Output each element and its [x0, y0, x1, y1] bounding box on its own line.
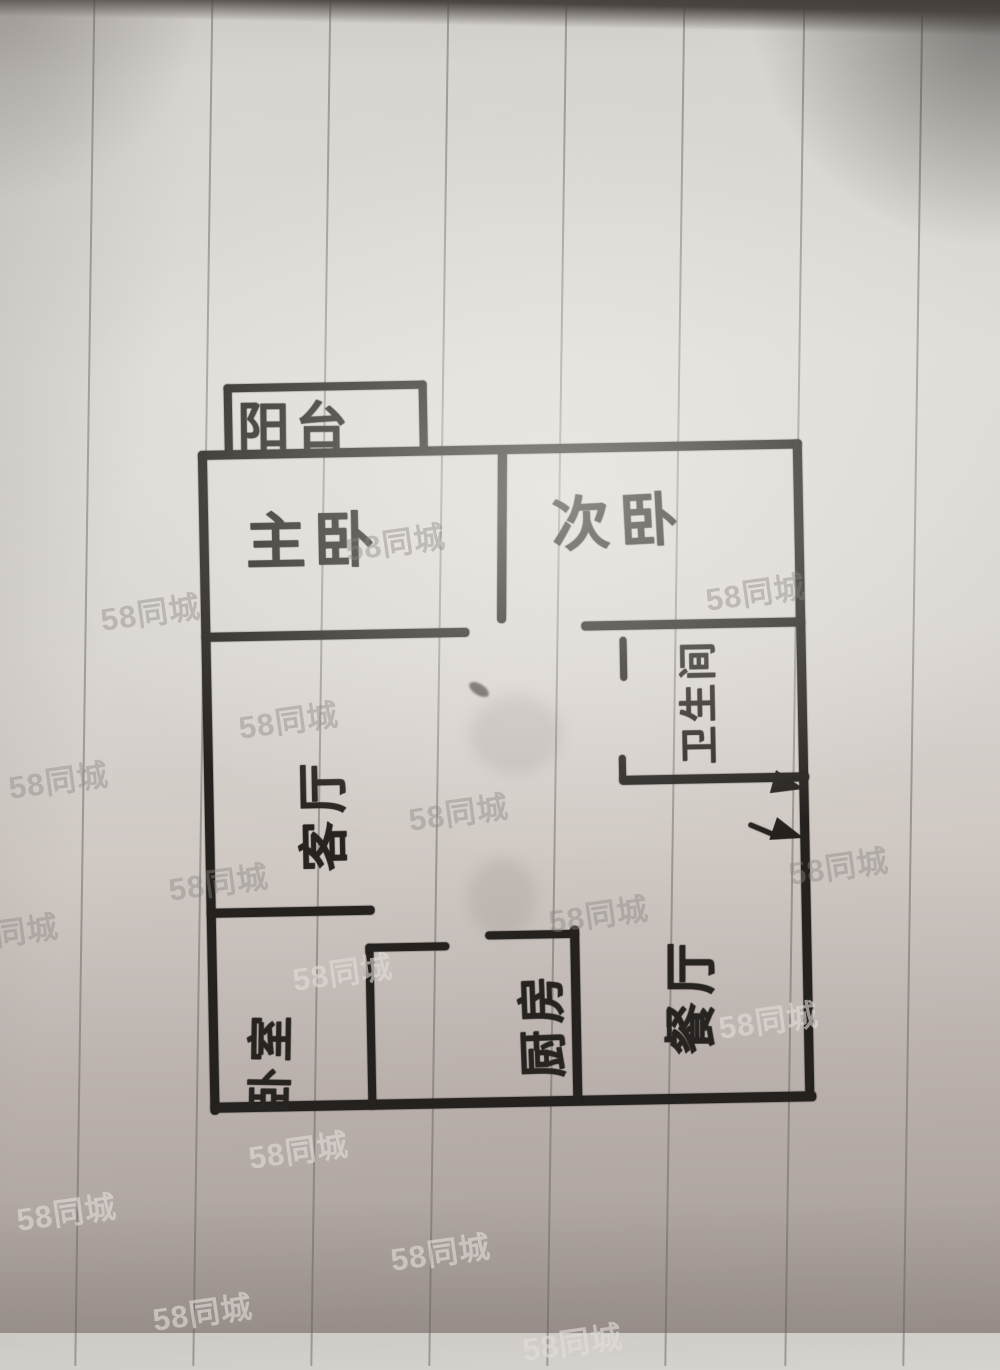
- bathroom-bottom-wall-hook: [619, 755, 627, 783]
- kitchen-top-right-wall: [485, 930, 579, 940]
- wall-left: [198, 453, 220, 1115]
- floor-plan: 阳台 主卧 次卧 卫生间 客厅 卧室 厨房 餐厅: [186, 369, 832, 1133]
- watermark-58tongcheng: 58同城: [519, 1311, 625, 1370]
- photo-of-floor-plan-sketch: { "scene": { "description": "Hand-drawn …: [0, 0, 1000, 1333]
- master-bedroom-label: 主卧: [245, 491, 383, 581]
- dining-room-label: 餐厅: [649, 922, 703, 1068]
- balcony-wall-right: [419, 381, 428, 451]
- bedroom-divider-wall: [497, 449, 507, 623]
- watermark-58tongcheng: 58同城: [387, 1221, 493, 1280]
- watermark-58tongcheng: 58同城: [0, 901, 61, 960]
- kitchen-top-left-wall: [365, 942, 449, 952]
- bedroom-label: 卧室: [234, 1004, 284, 1121]
- wall-right: [793, 439, 815, 1094]
- watermark-58tongcheng: 58同城: [149, 1281, 255, 1340]
- bathroom-door-jamb: [619, 637, 627, 681]
- bathroom-label: 卫生间: [666, 623, 713, 780]
- kitchen-label: 厨房: [501, 962, 556, 1088]
- kitchen-left-wall: [365, 944, 376, 1110]
- living-room-label: 客厅: [283, 748, 337, 879]
- watermark-58tongcheng: 58同城: [13, 1181, 119, 1240]
- ruled-line: [902, 0, 923, 1366]
- photo-top-edge-shadow: [0, 0, 1000, 36]
- bedroom-top-wall: [207, 906, 375, 918]
- ruled-line: [74, 0, 95, 1366]
- balcony-label: 阳台: [237, 384, 354, 460]
- balcony-wall-left: [224, 384, 233, 454]
- wall-bottom: [210, 1091, 816, 1113]
- master-bedroom-bottom-wall: [201, 628, 469, 642]
- watermark-58tongcheng: 58同城: [5, 749, 111, 808]
- second-bedroom-label: 次卧: [549, 471, 689, 562]
- watermark-58tongcheng: 58同城: [97, 581, 203, 640]
